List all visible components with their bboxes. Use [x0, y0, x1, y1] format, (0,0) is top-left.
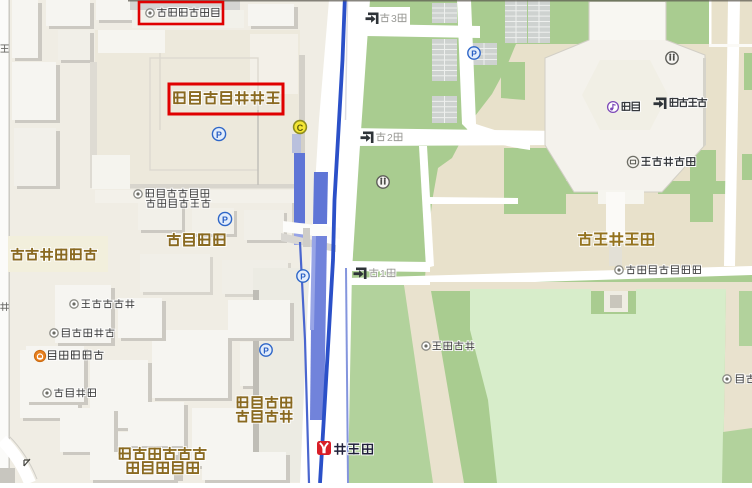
svg-text:P: P	[216, 130, 222, 140]
svg-text:C: C	[297, 123, 304, 133]
svg-text:P: P	[263, 346, 269, 356]
svg-text:3: 3	[391, 14, 397, 25]
svg-text:P: P	[300, 272, 306, 282]
svg-text:P: P	[471, 49, 477, 59]
svg-text:2: 2	[387, 133, 393, 144]
svg-text:1: 1	[380, 269, 386, 280]
svg-text:P: P	[222, 215, 228, 225]
